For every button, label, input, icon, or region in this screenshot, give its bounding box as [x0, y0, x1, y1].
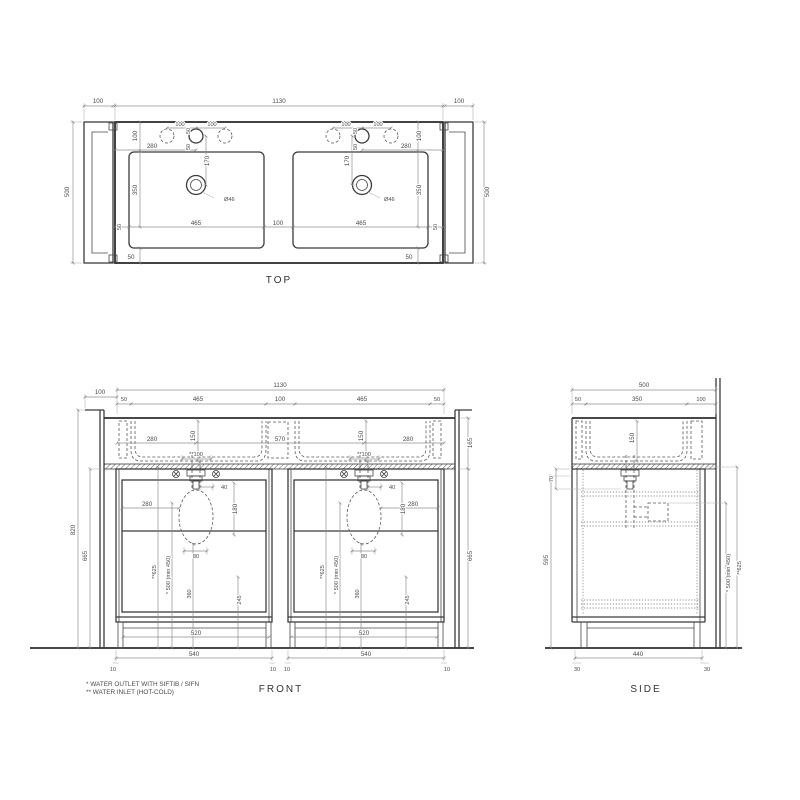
- dim-foot-4: 10: [444, 667, 450, 673]
- dim-hole-offset-l1: 50: [186, 128, 192, 134]
- side-internals: [581, 470, 700, 615]
- dim-drain-dia-left: Ø46: [224, 197, 235, 203]
- dim-side-foot-left: 30: [574, 667, 580, 673]
- dim-faucet-drain-left: 170: [204, 155, 211, 166]
- dim-top-overall: 1130: [272, 98, 286, 105]
- dim-drain-dia-right: Ø46: [384, 197, 395, 203]
- dim-outlet-center-left: 360: [187, 589, 193, 598]
- top-structure: [84, 122, 473, 263]
- top-dimension-lines: [70, 103, 487, 263]
- dim-hole-spacing-l2: 100: [207, 122, 216, 128]
- dim-front-gap: 100: [275, 396, 286, 403]
- dim-trap-center-right: 245: [405, 595, 411, 604]
- dim-edge-basin-right: 100: [416, 130, 423, 141]
- dim-hole-spacing-r1: 100: [341, 122, 350, 128]
- dim-front-wing: 100: [95, 389, 106, 396]
- dim-setback-right: 280: [401, 143, 412, 150]
- right-cabinet: [288, 469, 444, 622]
- footnote-inlet: ** WATER INLET (HOT-COLD): [86, 689, 174, 696]
- dim-trap-center-left: 245: [237, 595, 243, 604]
- dim-trap-side-right: 280: [408, 501, 419, 508]
- dim-top-height-right: 500: [484, 186, 491, 197]
- dim-outlet-height-right: * 500 (min 450): [334, 556, 340, 594]
- right-basin: [293, 152, 428, 248]
- dim-offset40-right: 40: [389, 485, 395, 491]
- dim-basin-length-right: 350: [416, 184, 423, 195]
- dim-side-inset-right: 50: [433, 224, 439, 230]
- dim-bottom-inset-right: 50: [406, 254, 413, 261]
- dim-hole-spacing-l1: 100: [175, 122, 184, 128]
- dim-hole-spacing-r2: 100: [373, 122, 382, 128]
- vanity-drawing: 100 1130 100 500 500 100 100 100 100 50 …: [0, 0, 800, 800]
- dim-side-cabinet-height: 595: [543, 554, 550, 565]
- hatch-band: [104, 464, 455, 469]
- dim-cabinet-width-right: 540: [361, 651, 372, 658]
- dim-trap-edge-left: 280: [147, 436, 158, 443]
- dim-front-basin-depth-left: 150: [190, 430, 197, 441]
- dim-basin-width-right: 465: [356, 220, 367, 227]
- left-cabinet: [116, 469, 272, 622]
- dim-trap-height-left: 180: [232, 503, 239, 514]
- dim-side-basin-depth: 150: [629, 432, 636, 443]
- dim-plinth-right: 520: [359, 630, 370, 637]
- dim-side-back-inset: 100: [696, 397, 705, 403]
- dim-outlet-center-right: 360: [355, 589, 361, 598]
- dim-cabinet-height-left: 665: [82, 550, 89, 561]
- dim-cabinet-width-left: 540: [189, 651, 200, 658]
- dim-edge-basin-left: 100: [132, 130, 139, 141]
- left-basin: [129, 152, 264, 248]
- side-view: 500 50 350 100 150 70 595 * 500 (min 450…: [543, 378, 743, 695]
- front-view: 1130 100 50 465 100 465 50 150 150 280 5…: [30, 382, 474, 696]
- top-view: 100 1130 100 500 500 100 100 100 100 50 …: [64, 98, 491, 286]
- dim-side-cabinet-depth: 440: [633, 651, 644, 658]
- dim-bottom-inset-left: 50: [128, 254, 135, 261]
- dim-hole-offset-l2: 50: [186, 144, 192, 150]
- dim-side-basin-plan: 350: [632, 396, 643, 403]
- dim-side-inset-left: 50: [117, 224, 123, 230]
- top-view-label: TOP: [266, 275, 292, 286]
- side-view-label: SIDE: [630, 684, 661, 695]
- dim-inlet-spacing-right: **100: [357, 452, 371, 458]
- footnote-outlet: * WATER OUTLET WITH SIFTIB / SIFN: [86, 681, 200, 688]
- dim-front-inset-left: 50: [121, 397, 127, 403]
- side-structure: [545, 378, 742, 648]
- dim-top-wing-right: 100: [454, 98, 465, 105]
- dim-total-height: 820: [70, 524, 77, 535]
- dim-foot-1: 10: [110, 667, 116, 673]
- dim-side-front-inset: 50: [575, 397, 581, 403]
- dim-outlet-height-left: * 500 (min 450): [166, 556, 172, 594]
- dim-offset40-left: 40: [221, 485, 227, 491]
- front-view-label: FRONT: [259, 684, 303, 695]
- dim-foot-2: 10: [270, 667, 276, 673]
- dim-front-basin-width-right: 465: [357, 396, 368, 403]
- dim-foot-3: 10: [284, 667, 290, 673]
- dim-trap-width-right: 80: [361, 554, 367, 560]
- dim-front-basin-width-left: 465: [193, 396, 204, 403]
- dim-plinth-left: 520: [191, 630, 202, 637]
- dim-hole-offset-r2: 50: [353, 144, 359, 150]
- dim-front-inset-right: 50: [434, 397, 440, 403]
- dim-side-inlet-height: **625: [737, 561, 743, 575]
- dim-top-wing-left: 100: [93, 98, 104, 105]
- dim-side-flange: 70: [549, 476, 555, 482]
- technical-drawing-page: 100 1130 100 500 500 100 100 100 100 50 …: [0, 0, 800, 800]
- dim-basin-length-left: 350: [132, 184, 139, 195]
- dim-trap-edge-right: 280: [403, 436, 414, 443]
- dim-side-depth: 500: [639, 382, 650, 389]
- dim-front-overall: 1130: [273, 382, 287, 389]
- dim-setback-left: 280: [147, 143, 158, 150]
- front-structure: [30, 410, 474, 648]
- dim-trap-side-left: 280: [142, 501, 153, 508]
- dim-inlet-spacing-left: **100: [189, 452, 203, 458]
- dim-basin-gap: 100: [273, 220, 284, 227]
- dim-trap-height-right: 180: [400, 503, 407, 514]
- dim-trap-spacing: 570: [275, 436, 286, 443]
- dim-faucet-drain-right: 170: [344, 155, 351, 166]
- dim-side-foot-right: 30: [704, 667, 710, 673]
- dim-front-basin-depth-right: 150: [358, 430, 365, 441]
- dim-inlet-height-right: **625: [320, 565, 326, 579]
- dim-counter-height: 165: [467, 437, 474, 448]
- dim-hole-offset-r1: 50: [353, 128, 359, 134]
- dim-top-height-left: 500: [64, 186, 71, 197]
- dim-side-outlet-height: * 500 (min 450): [726, 554, 732, 592]
- dim-inlet-height-left: **625: [152, 565, 158, 579]
- dim-basin-width-left: 465: [191, 220, 202, 227]
- dim-trap-width-left: 80: [193, 554, 199, 560]
- dim-cabinet-height-right: 665: [467, 550, 474, 561]
